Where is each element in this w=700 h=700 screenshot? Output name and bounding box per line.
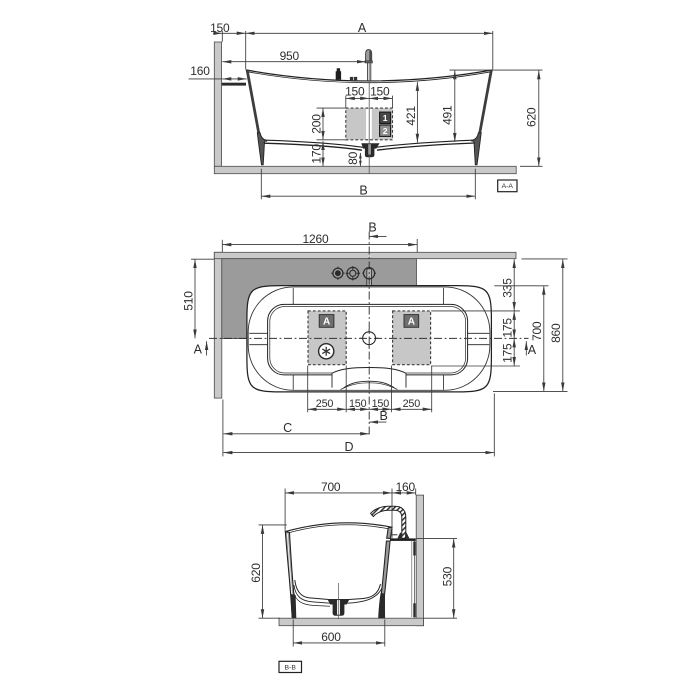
svg-text:600: 600	[321, 630, 341, 644]
svg-text:B-B: B-B	[285, 664, 297, 671]
svg-text:A-A: A-A	[502, 183, 514, 190]
svg-text:335: 335	[501, 278, 515, 298]
svg-text:160: 160	[190, 64, 210, 78]
svg-text:170: 170	[310, 144, 324, 164]
svg-text:1260: 1260	[303, 232, 329, 246]
svg-text:200: 200	[310, 114, 324, 134]
svg-text:860: 860	[549, 323, 563, 343]
svg-text:160: 160	[396, 480, 416, 494]
svg-text:A: A	[528, 343, 537, 357]
svg-text:B: B	[380, 409, 388, 423]
svg-text:700: 700	[321, 480, 341, 494]
svg-text:A: A	[194, 343, 203, 357]
svg-text:250: 250	[403, 398, 421, 410]
svg-text:530: 530	[440, 566, 454, 586]
svg-text:700: 700	[530, 321, 544, 341]
svg-text:491: 491	[441, 105, 455, 125]
svg-text:620: 620	[249, 563, 263, 583]
svg-text:150: 150	[372, 398, 390, 410]
svg-text:150: 150	[345, 84, 365, 98]
svg-text:250: 250	[316, 398, 334, 410]
svg-text:A: A	[408, 317, 415, 328]
svg-text:150: 150	[210, 21, 230, 35]
svg-text:950: 950	[280, 49, 300, 63]
svg-text:2: 2	[383, 126, 388, 136]
svg-text:80: 80	[346, 151, 360, 164]
svg-text:C: C	[283, 421, 292, 435]
svg-text:A: A	[323, 317, 330, 328]
svg-text:175: 175	[501, 318, 515, 338]
svg-text:B: B	[359, 184, 367, 198]
svg-text:150: 150	[349, 398, 367, 410]
svg-text:D: D	[344, 440, 353, 454]
svg-text:B: B	[368, 221, 376, 235]
svg-text:A: A	[358, 21, 367, 35]
svg-text:1: 1	[383, 113, 388, 123]
svg-text:620: 620	[525, 107, 539, 127]
svg-text:510: 510	[181, 291, 195, 311]
svg-text:150: 150	[370, 84, 390, 98]
svg-text:421: 421	[404, 106, 418, 126]
svg-text:175: 175	[501, 343, 515, 363]
